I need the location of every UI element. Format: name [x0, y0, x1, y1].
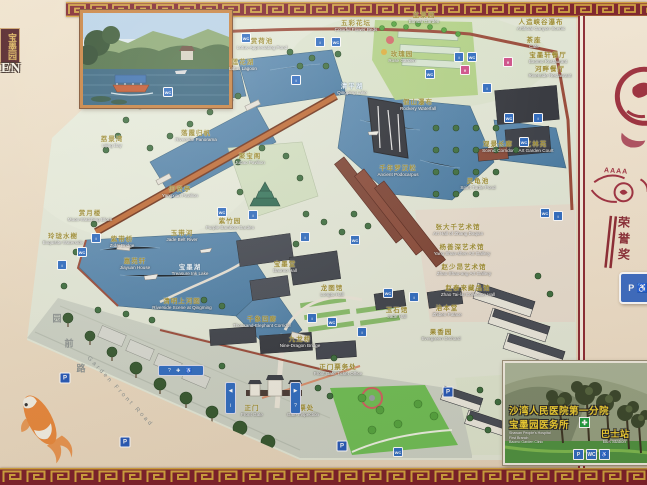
facility-icon: WC	[241, 33, 251, 43]
facility-icon: i	[91, 233, 101, 243]
facility-icon: i	[300, 232, 310, 242]
gate-sign-bar: ▶?	[290, 382, 301, 414]
facility-icon: i	[357, 327, 367, 337]
facility-icon: i	[454, 52, 464, 62]
medical-cross-icon: ✚	[579, 417, 590, 428]
facility-icon: ¥	[503, 57, 513, 67]
facility-icon: WC	[77, 247, 87, 257]
facility-icon: WC	[540, 208, 550, 218]
bus-station-en: Bus Station	[603, 439, 626, 445]
facility-icon: i	[57, 260, 67, 270]
parking-icon: P	[443, 387, 454, 398]
clinic-facility-icon: P	[573, 449, 584, 460]
parking-icon: P	[120, 437, 131, 448]
facility-icon: i	[482, 83, 492, 93]
facility-icon: ¥	[460, 65, 470, 75]
clinic-icons-row: PWC♿	[573, 449, 610, 460]
facility-icon: WC	[425, 69, 435, 79]
facility-icon: WC	[383, 288, 393, 298]
clinic-title-zh: 沙湾人民医院第一分院	[509, 403, 609, 417]
parking-icon: P	[337, 441, 348, 452]
clinic-inset: 沙湾人民医院第一分院 宝墨园医务所 ✚ Shawan People's Hosp…	[503, 361, 647, 465]
facility-icon: WC	[393, 447, 403, 457]
facility-icon: i	[533, 113, 543, 123]
clinic-small-text: Shawan People's HospitalFirst BranchBaom…	[509, 431, 551, 445]
gate-sign-bar: ◀i	[225, 382, 236, 414]
facility-icon: WC	[217, 207, 227, 217]
facility-icon: WC	[327, 317, 337, 327]
clinic-facility-icon: ♿	[599, 449, 610, 460]
facility-icon: i	[291, 75, 301, 85]
facility-icon: WC	[519, 137, 529, 147]
facility-icon: WC	[350, 235, 360, 245]
road-name-char: 路	[76, 362, 85, 375]
facility-icon: WC	[504, 113, 514, 123]
facility-icon: WC	[467, 52, 477, 62]
facility-icon: i	[307, 313, 317, 323]
facility-icon: i	[315, 37, 325, 47]
koi-fish-decoration	[2, 378, 82, 468]
facility-icon: WC	[163, 87, 173, 97]
road-name-char: 园	[52, 312, 61, 325]
clinic-subtitle-zh: 宝墨园医务所	[509, 417, 569, 431]
facility-icon: i	[248, 210, 258, 220]
facility-icon: i	[409, 292, 419, 302]
facility-icon: i	[553, 211, 563, 221]
road-name-char: 前	[64, 337, 73, 350]
clinic-facility-icon: WC	[586, 449, 597, 460]
facility-icon: WC	[331, 37, 341, 47]
service-point-sign: ? ✚ ♿	[158, 365, 204, 376]
guide-map-photo: 宝墨园 EN AAAA 荣誉奖 P ♿ 赏荷池Lotus	[0, 0, 647, 485]
